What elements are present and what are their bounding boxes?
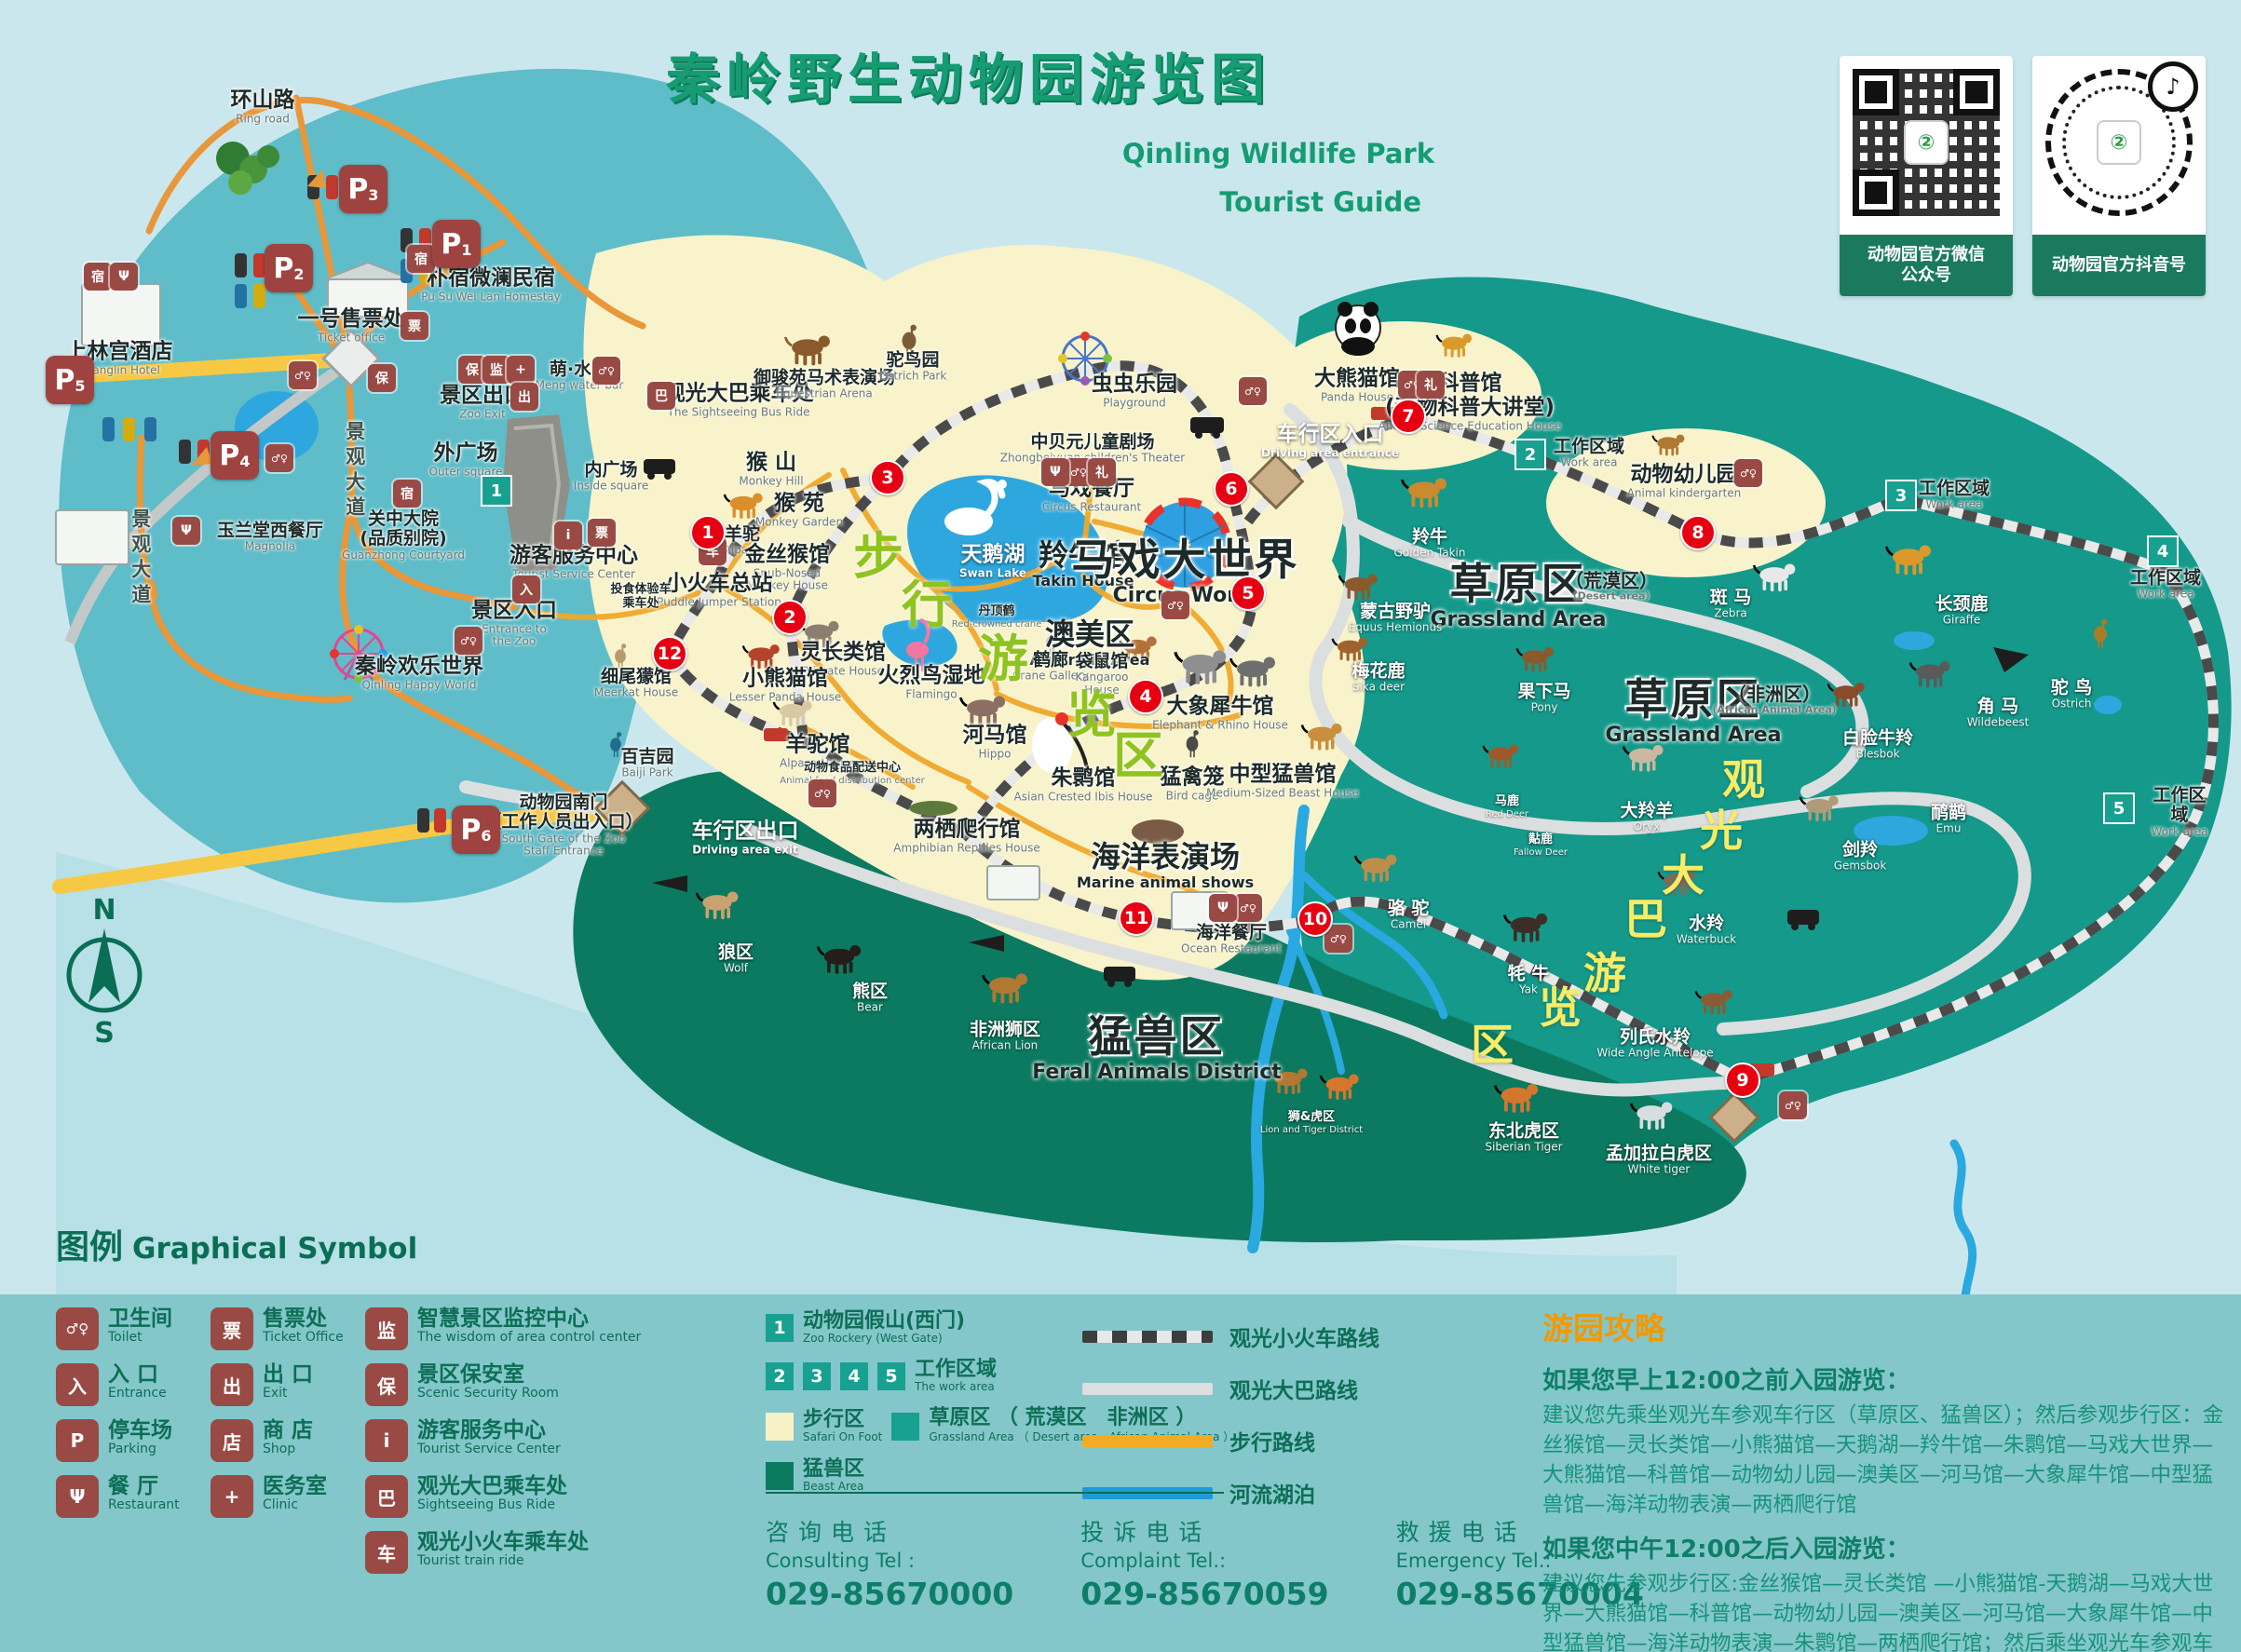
facility-icon: 票 [401, 312, 428, 340]
train-stop-marker-1: 1 [690, 515, 726, 550]
facility-icon: ♂♀ [1734, 459, 1762, 487]
qr-douyin-label: 动物园官方抖音号 [2032, 235, 2206, 296]
strategy-title: 游园攻略 [1542, 1304, 2234, 1348]
facility-icon: ♂♀ [455, 627, 482, 655]
area-marker-3: 3 [1885, 480, 1917, 511]
legend-item-the-wisdom-of-area-control-center: 监智慧景区监控中心The wisdom of area control cent… [365, 1307, 641, 1350]
subtitle-en2: Tourist Guide [1219, 186, 1421, 218]
facility-icon: 礼 [1088, 458, 1116, 486]
train-stop-marker-3: 3 [870, 460, 905, 495]
legend-item-parking: P停车场Parking [56, 1419, 180, 1462]
legend-item-ticket-office: 票售票处Ticket Office [211, 1307, 344, 1350]
facility-icon: 入 [512, 575, 540, 603]
area-marker-4: 4 [2147, 535, 2179, 567]
legend-item-scenic-security-room: 保景区保安室Scenic Security Room [365, 1363, 641, 1406]
legend-item-entrance: 入入 口Entrance [56, 1363, 180, 1406]
facility-icon: ♂♀ [1779, 1091, 1807, 1119]
crocodile-icon [909, 801, 958, 816]
strategy-morning-head: 如果您早上12:00之前入园游览： [1542, 1361, 2234, 1396]
phone-numbers: 咨询电话Consulting Tel :029-85670000投诉电话Comp… [766, 1514, 1644, 1612]
area-marker-5: 5 [2103, 792, 2135, 824]
legend-ticket-icon: 票 [211, 1307, 253, 1350]
legend-header: 图例Graphical Symbol [56, 1220, 417, 1268]
phone-consulting: 咨询电话Consulting Tel :029-85670000 [766, 1514, 1013, 1612]
train-stop-marker-6: 6 [1214, 471, 1249, 507]
legend-route-rl-bus: 观光大巴路线 [1082, 1373, 1379, 1404]
legend-item-sightseeing-bus-ride: 巴观光大巴乘车处Sightseeing Bus Ride [365, 1475, 641, 1518]
facility-icon: 礼 [1417, 371, 1445, 399]
douyin-qr-icon: ② ♪ [2045, 69, 2193, 216]
legend-route-rl-walk: 步行路线 [1082, 1425, 1379, 1456]
wechat-qr-icon: ② [1853, 69, 2000, 216]
qr-wechat-card: ② 动物园官方微信 公众号 [1840, 56, 2013, 296]
facility-icon: + [507, 356, 535, 384]
tour-strategy: 游园攻略 如果您早上12:00之前入园游览： 建议您先乘坐观光车参观车行区（草原… [1542, 1304, 2234, 1652]
train-stop-marker-9: 9 [1725, 1063, 1760, 1098]
legend-scenic-icon: 保 [365, 1363, 408, 1406]
area-marker-2: 2 [1514, 439, 1546, 470]
parking-badge-p5: P5 [46, 356, 94, 404]
zone-color-swatch [766, 1462, 794, 1490]
parking-badge-p6: P6 [452, 806, 500, 854]
sea-lion-icon [1132, 819, 1184, 844]
legend-the-icon: 监 [365, 1307, 408, 1350]
zone-number-badge: 2 [766, 1362, 794, 1390]
rl-walk-sample [1082, 1435, 1213, 1447]
facility-icon: ♂♀ [808, 779, 836, 807]
compass: N S [53, 893, 156, 1055]
facility-icon: ♂♀ [1239, 377, 1267, 405]
qr-wechat-label: 动物园官方微信 公众号 [1840, 235, 2013, 296]
strategy-morning-body: 建议您先乘坐观光车参观车行区（草原区、猛兽区）；然后参观步行区：金丝猴馆—灵长类… [1542, 1401, 2234, 1521]
legend-item-restaurant: Ψ餐 厅Restaurant [56, 1475, 180, 1518]
zone-color-swatch [766, 1413, 794, 1441]
parking-badge-p3: P3 [339, 165, 387, 213]
panda-icon [1336, 302, 1380, 356]
facility-icon: 巴 [647, 382, 675, 410]
legend-exit-icon: 出 [211, 1363, 253, 1406]
strategy-afternoon-body: 建议您先参观步行区:金丝猴馆—灵长类馆 —小熊猫馆-天鹅湖—马戏大世界—大熊猫馆… [1542, 1570, 2234, 1652]
legend-sightseeing-icon: 巴 [365, 1475, 408, 1518]
train-stop-marker-2: 2 [772, 600, 808, 635]
legend-tourist-icon: i [365, 1419, 408, 1462]
facility-icon: 票 [588, 519, 616, 547]
facility-icon: ♂♀ [1161, 591, 1189, 619]
facility-icon: Ψ [172, 517, 200, 545]
facility-icon: ♂♀ [592, 357, 620, 385]
compass-south: S [94, 1017, 115, 1049]
legend-routes: 观光小火车路线观光大巴路线步行路线河流湖泊 [1082, 1320, 1379, 1509]
legend-divider [766, 1492, 1224, 1494]
legend-shop-icon: 店 [211, 1419, 253, 1462]
phone-complaint: 投诉电话Complaint Tel.:029-85670059 [1080, 1514, 1328, 1612]
legend-item-exit: 出出 口Exit [211, 1363, 344, 1406]
legend-item-clinic: +医务室Clinic [211, 1475, 344, 1518]
rl-train-sample [1082, 1331, 1213, 1343]
legend-tourist-icon: 车 [365, 1531, 408, 1574]
legend-facilities-col3: 监智慧景区监控中心The wisdom of area control cent… [365, 1307, 641, 1574]
zone-number-badge: 5 [877, 1362, 905, 1390]
legend-facilities-col1: ♂♀卫生间Toilet入入 口EntranceP停车场ParkingΨ餐 厅Re… [56, 1307, 180, 1518]
train-stop-marker-7: 7 [1391, 399, 1426, 434]
train-stop-marker-5: 5 [1230, 575, 1266, 611]
legend-toilet-icon: ♂♀ [56, 1307, 99, 1350]
strategy-afternoon-head: 如果您中午12:00之后入园游览： [1542, 1530, 2234, 1564]
area-marker-1: 1 [481, 475, 512, 507]
facility-icon: 宿 [407, 245, 435, 273]
facility-icon: 宿 [84, 263, 112, 291]
legend-item-tourist-train-ride: 车观光小火车乘车处Tourist train ride [365, 1531, 641, 1574]
train-stop-marker-11: 11 [1119, 900, 1154, 936]
legend-clinic-icon: + [211, 1475, 253, 1518]
parking-badge-p4: P4 [211, 431, 259, 480]
facility-icon: 保 [368, 364, 396, 392]
facility-icon: Ψ [110, 263, 138, 291]
parking-badge-p2: P2 [265, 244, 313, 292]
train-stop-marker-10: 10 [1297, 901, 1333, 937]
train-stop-marker-8: 8 [1680, 515, 1716, 550]
legend-restaurant-icon: Ψ [56, 1475, 99, 1518]
zone-number-badge: 4 [840, 1362, 868, 1390]
legend-parking-icon: P [56, 1419, 99, 1462]
zone-number-badge: 1 [766, 1314, 794, 1342]
train-stop-marker-12: 12 [652, 636, 687, 671]
parking-badge-p1: P1 [432, 220, 481, 268]
facility-icon: ♂♀ [265, 444, 293, 472]
qr-douyin-card: ② ♪ 动物园官方抖音号 [2032, 56, 2206, 296]
legend-route-rl-train: 观光小火车路线 [1082, 1320, 1379, 1352]
rl-bus-sample [1082, 1383, 1213, 1395]
facility-icon: 出 [510, 383, 538, 411]
circus-tent-icon [1142, 502, 1228, 588]
facility-icon: 宿 [393, 480, 421, 508]
zone-number-badge: 3 [803, 1362, 831, 1390]
train-stop-marker-4: 4 [1128, 679, 1163, 714]
legend-entrance-icon: 入 [56, 1363, 99, 1406]
page-title: 秦岭野生动物园游览图 [666, 35, 1271, 114]
legend-item-toilet: ♂♀卫生间Toilet [56, 1307, 180, 1350]
legend-facilities-col2: 票售票处Ticket Office出出 口Exit店商 店Shop+医务室Cli… [211, 1307, 344, 1518]
facility-icon: ♂♀ [289, 361, 317, 389]
facility-icon: i [554, 521, 582, 549]
legend-item-shop: 店商 店Shop [211, 1419, 344, 1462]
facility-icon: Ψ [1209, 894, 1237, 922]
facility-icon: Ψ [1041, 458, 1069, 486]
legend-item-tourist-service-center: i游客服务中心Tourist Service Center [365, 1419, 641, 1462]
zone-color-swatch [891, 1413, 919, 1441]
compass-north: N [92, 894, 115, 927]
facility-icon: ♂♀ [1234, 894, 1262, 922]
subtitle-en1: Qinling Wildlife Park [1122, 138, 1434, 169]
tourist-map-poster: 秦岭野生动物园游览图 Qinling Wildlife Park Tourist… [0, 0, 2241, 1652]
legend-panel: ♂♀卫生间Toilet入入 口EntranceP停车场ParkingΨ餐 厅Re… [0, 1294, 2241, 1652]
